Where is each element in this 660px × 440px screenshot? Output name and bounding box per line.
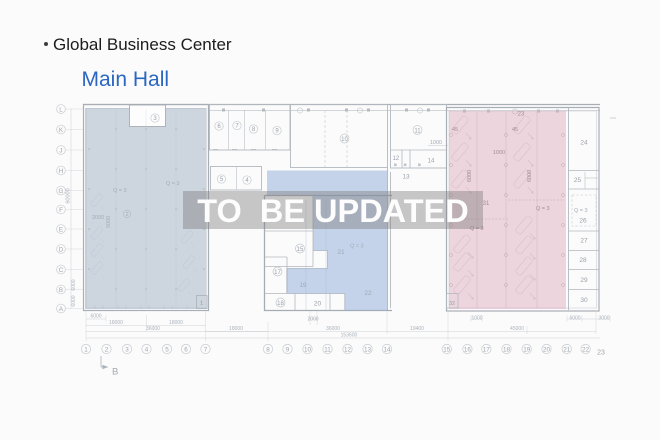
svg-text:C: C bbox=[59, 267, 64, 274]
svg-text:18: 18 bbox=[277, 301, 284, 307]
svg-text:14: 14 bbox=[428, 158, 435, 164]
svg-text:153600: 153600 bbox=[341, 333, 358, 339]
svg-text:30: 30 bbox=[580, 297, 588, 304]
svg-text:12: 12 bbox=[392, 156, 399, 162]
svg-text:Q = 3: Q = 3 bbox=[350, 244, 364, 250]
svg-text:4: 4 bbox=[245, 178, 249, 184]
svg-text:19400: 19400 bbox=[410, 326, 424, 332]
svg-text:18000: 18000 bbox=[229, 326, 243, 332]
svg-text:1: 1 bbox=[84, 347, 88, 354]
svg-text:1000: 1000 bbox=[493, 150, 505, 156]
svg-text:2000: 2000 bbox=[307, 317, 318, 323]
svg-text:G: G bbox=[59, 188, 64, 195]
svg-text:13: 13 bbox=[364, 347, 372, 354]
svg-text:F: F bbox=[59, 207, 63, 214]
svg-text:36000: 36000 bbox=[326, 326, 340, 332]
svg-text:18: 18 bbox=[503, 347, 511, 354]
svg-text:2: 2 bbox=[105, 347, 109, 354]
svg-text:15: 15 bbox=[443, 347, 451, 354]
svg-text:2000: 2000 bbox=[92, 215, 104, 221]
svg-text:17: 17 bbox=[483, 347, 491, 354]
svg-text:7: 7 bbox=[204, 347, 208, 354]
svg-text:12: 12 bbox=[344, 347, 352, 354]
svg-text:7: 7 bbox=[235, 124, 239, 130]
svg-text:H: H bbox=[59, 168, 64, 175]
svg-text:22: 22 bbox=[582, 347, 590, 354]
svg-text:6000: 6000 bbox=[90, 314, 101, 320]
svg-text:B: B bbox=[59, 287, 63, 294]
svg-text:9: 9 bbox=[286, 347, 290, 354]
svg-text:5: 5 bbox=[165, 347, 169, 354]
svg-text:8: 8 bbox=[252, 127, 256, 133]
svg-text:6000: 6000 bbox=[569, 316, 580, 322]
svg-text:J: J bbox=[59, 148, 62, 155]
svg-text:36000: 36000 bbox=[146, 326, 160, 332]
svg-text:45: 45 bbox=[452, 127, 458, 133]
svg-text:22: 22 bbox=[364, 290, 372, 297]
svg-text:17: 17 bbox=[274, 270, 281, 276]
svg-text:Q = 3: Q = 3 bbox=[574, 208, 588, 214]
svg-text:1000: 1000 bbox=[430, 140, 442, 146]
svg-text:45000: 45000 bbox=[510, 326, 524, 332]
svg-text:45: 45 bbox=[512, 127, 518, 133]
svg-text:5: 5 bbox=[220, 177, 224, 183]
svg-text:28: 28 bbox=[579, 257, 587, 264]
svg-text:6000: 6000 bbox=[467, 170, 473, 182]
svg-text:15: 15 bbox=[297, 247, 304, 253]
svg-text:6000: 6000 bbox=[527, 170, 533, 182]
svg-text:60000: 60000 bbox=[66, 188, 72, 203]
svg-text:23: 23 bbox=[518, 112, 525, 118]
svg-text:21: 21 bbox=[337, 249, 345, 256]
svg-text:B: B bbox=[112, 367, 118, 378]
svg-text:27: 27 bbox=[580, 238, 588, 245]
svg-text:2: 2 bbox=[125, 212, 128, 218]
svg-text:24: 24 bbox=[580, 140, 588, 147]
svg-text:20: 20 bbox=[314, 301, 322, 308]
svg-text:5000: 5000 bbox=[106, 216, 112, 228]
svg-text:Q = 3: Q = 3 bbox=[166, 181, 180, 187]
svg-text:6000: 6000 bbox=[71, 279, 77, 290]
svg-text:E: E bbox=[59, 227, 63, 234]
svg-text:25: 25 bbox=[574, 177, 582, 184]
svg-text:18000: 18000 bbox=[169, 320, 183, 326]
svg-text:16: 16 bbox=[464, 347, 472, 354]
svg-text:6: 6 bbox=[217, 124, 221, 130]
svg-text:26: 26 bbox=[579, 218, 587, 225]
svg-text:21: 21 bbox=[563, 347, 571, 354]
svg-text:10: 10 bbox=[341, 137, 348, 143]
svg-text:D: D bbox=[59, 247, 64, 254]
svg-text:18000: 18000 bbox=[109, 320, 123, 326]
svg-text:6000: 6000 bbox=[71, 295, 77, 306]
svg-text:20: 20 bbox=[543, 347, 551, 354]
svg-text:3000: 3000 bbox=[598, 316, 609, 322]
svg-text:10: 10 bbox=[304, 347, 312, 354]
svg-text:11: 11 bbox=[414, 128, 421, 134]
svg-text:1: 1 bbox=[200, 301, 203, 307]
svg-text:32: 32 bbox=[449, 301, 455, 307]
svg-text:L: L bbox=[59, 107, 63, 114]
svg-text:23: 23 bbox=[597, 350, 605, 357]
svg-text:13: 13 bbox=[402, 173, 410, 180]
svg-text:3: 3 bbox=[125, 347, 129, 354]
svg-text:19: 19 bbox=[523, 347, 531, 354]
svg-text:6: 6 bbox=[184, 347, 188, 354]
svg-text:8: 8 bbox=[266, 347, 270, 354]
svg-text:31: 31 bbox=[483, 201, 490, 207]
svg-text:9: 9 bbox=[275, 129, 279, 135]
svg-text:29: 29 bbox=[580, 277, 588, 284]
svg-text:11: 11 bbox=[324, 347, 331, 354]
svg-text:4: 4 bbox=[145, 347, 149, 354]
svg-text:1000: 1000 bbox=[471, 316, 482, 322]
svg-text:14: 14 bbox=[383, 347, 391, 354]
svg-text:Q = 3: Q = 3 bbox=[113, 188, 127, 194]
svg-text:Q = 3: Q = 3 bbox=[536, 206, 550, 212]
